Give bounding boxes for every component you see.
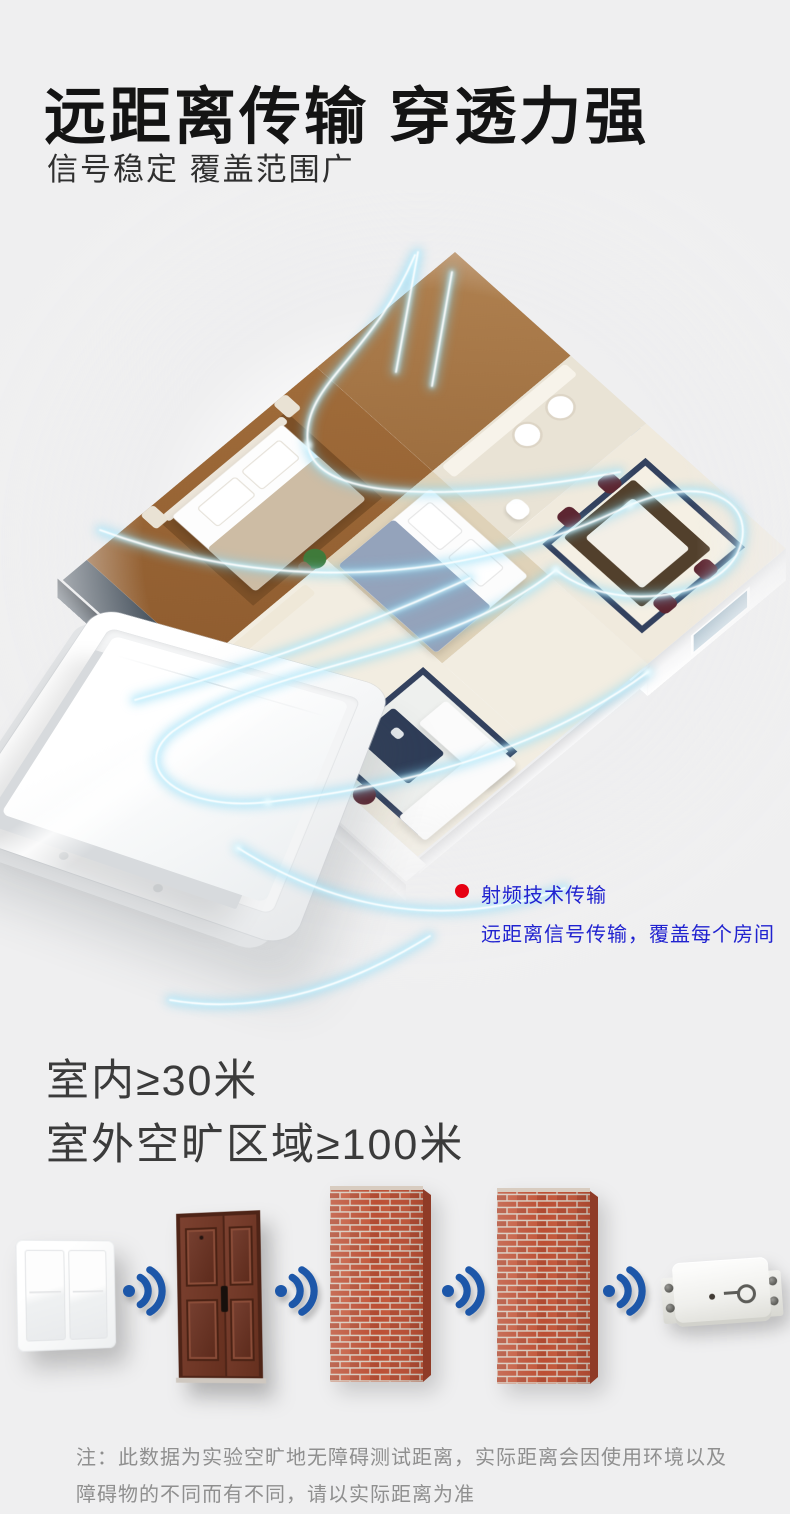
page-title: 远距离传输 穿透力强: [44, 66, 649, 156]
outdoor-range-claim: 室外空旷区域≥100米: [46, 1110, 464, 1172]
wifi-signal-icon: [273, 1258, 321, 1324]
door-sill: [176, 1378, 266, 1384]
transmission-diagram: [0, 1180, 790, 1410]
switch-rocker: [68, 1250, 107, 1340]
door-leaf: [224, 1214, 259, 1376]
page-subtitle: 信号稳定 覆盖范围广: [47, 144, 355, 189]
disclaimer-line: 障碍物的不同而有不同，请以实际距离为准: [76, 1477, 727, 1514]
product-detail-page: 远距离传输 穿透力强 信号稳定 覆盖范围广: [0, 0, 790, 1514]
disclaimer-note: 注：此数据为实验空旷地无障碍测试距离，实际距离会因使用环境以及 障碍物的不同而有…: [76, 1440, 727, 1514]
switch-plate: [15, 1240, 116, 1353]
signal-coverage-illustration: [0, 200, 790, 1030]
wall-switch-icon: [15, 1240, 116, 1353]
door-lock: [220, 1286, 227, 1312]
wifi-signal-icon: [121, 1258, 169, 1324]
brick-wall-icon: [330, 1186, 432, 1384]
security-door-icon: [176, 1210, 263, 1380]
receiver-module-icon: [659, 1252, 784, 1338]
led-indicator: [708, 1294, 714, 1300]
brick-wall-icon: [497, 1188, 599, 1386]
receiver-body: [672, 1257, 772, 1328]
pairing-key-icon: [737, 1284, 757, 1304]
wifi-signal-icon: [601, 1258, 649, 1324]
switch-rocker: [25, 1250, 66, 1342]
indoor-range-claim: 室内≥30米: [46, 1046, 258, 1108]
signal-glow-waves: [0, 200, 790, 1030]
wifi-signal-icon: [440, 1258, 488, 1324]
disclaimer-line: 注：此数据为实验空旷地无障碍测试距离，实际距离会因使用环境以及: [76, 1440, 727, 1477]
bullet-dot-icon: [455, 884, 469, 898]
annotation-title: 射频技术传输: [481, 879, 607, 908]
annotation-description: 远距离信号传输，覆盖每个房间: [481, 918, 775, 947]
door-leaf: [180, 1216, 225, 1376]
